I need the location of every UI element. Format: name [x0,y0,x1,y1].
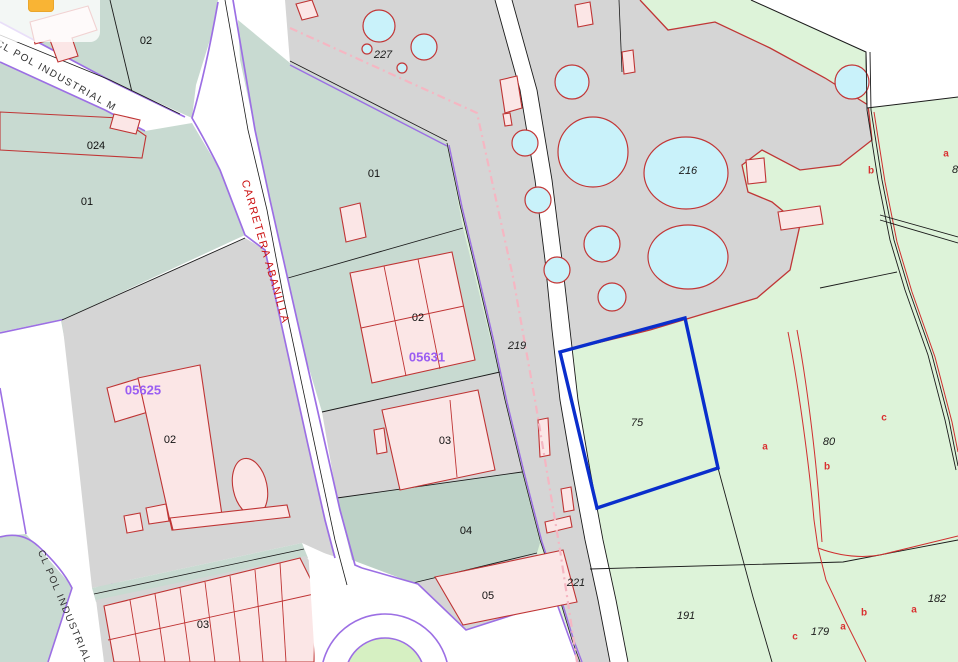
pond [397,63,407,73]
pond [525,187,551,213]
pond [584,226,620,262]
pond [363,10,395,42]
orange-marker[interactable] [28,0,54,12]
pond [648,225,728,289]
building-grid-05631 [350,252,475,383]
pond [411,34,437,60]
map-layers [0,0,958,662]
building [124,513,143,533]
building [746,158,766,184]
pond-216 [644,137,728,209]
building [575,2,593,27]
building [503,113,512,126]
map-canvas[interactable]: 02 024 01 01 02 05631 03 04 05 02 05625 … [0,0,958,662]
pond [544,257,570,283]
pond [558,117,628,187]
building [146,504,169,524]
pond [835,65,869,99]
pond [362,44,372,54]
pond [598,283,626,311]
pond [512,130,538,156]
building [622,50,635,74]
pond [555,65,589,99]
